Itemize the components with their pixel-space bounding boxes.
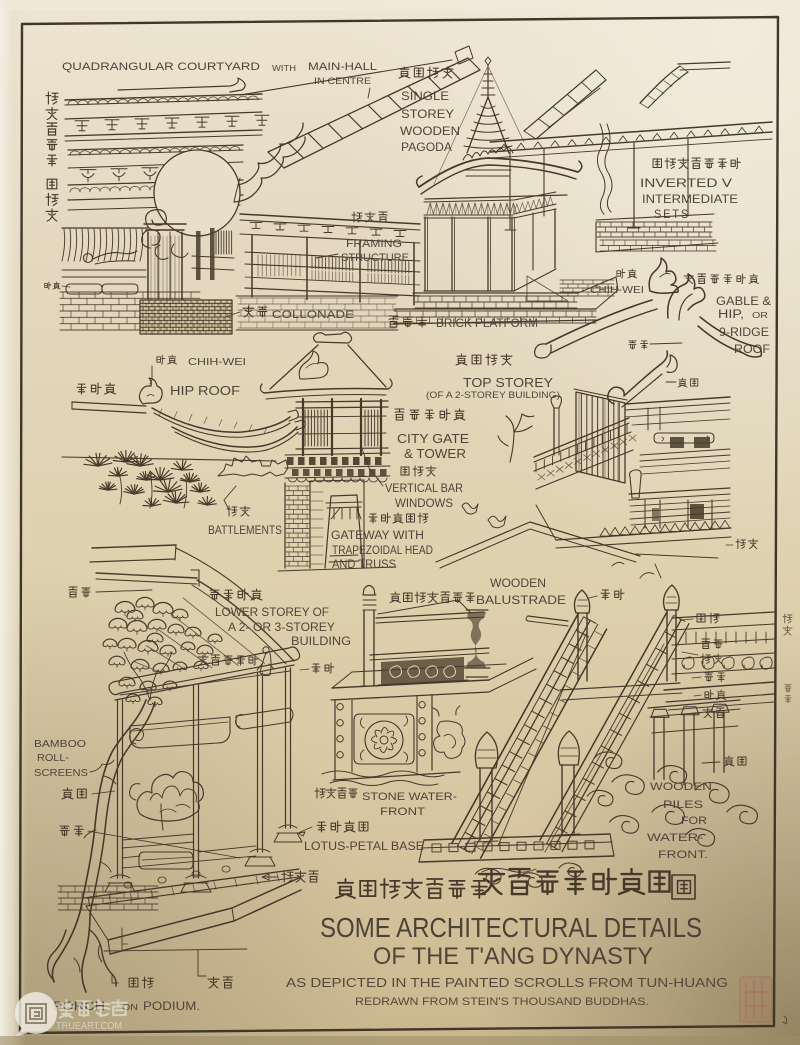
svg-text:CHIH-WEI: CHIH-WEI (188, 356, 246, 368)
svg-text:COLLONADE: COLLONADE (272, 309, 354, 321)
svg-text:HIP,: HIP, (718, 309, 744, 321)
svg-text:BALUSTRADE: BALUSTRADE (476, 595, 566, 607)
svg-text:AND TRUSS: AND TRUSS (332, 559, 396, 571)
svg-text:QUADRANGULAR COURTYARD: QUADRANGULAR COURTYARD (62, 61, 260, 73)
svg-text:FRONT.: FRONT. (658, 849, 708, 861)
svg-text:LOWER STOREY OF: LOWER STOREY OF (215, 607, 329, 619)
svg-text:VERTICAL BAR: VERTICAL BAR (385, 483, 463, 495)
svg-text:MAIN-HALL: MAIN-HALL (308, 61, 377, 73)
svg-text:PILES: PILES (663, 799, 703, 811)
svg-text:& TOWER: & TOWER (404, 446, 466, 461)
svg-text:HIP ROOF: HIP ROOF (170, 383, 240, 398)
svg-text:SCREENS: SCREENS (34, 767, 88, 779)
svg-text:INTERMEDIATE: INTERMEDIATE (642, 192, 738, 206)
svg-text:GATEWAY WITH: GATEWAY WITH (331, 530, 424, 542)
svg-text:SOME ARCHITECTURAL DETAILS: SOME ARCHITECTURAL DETAILS (320, 912, 702, 943)
svg-text:REDRAWN FROM STEIN'S THOUSA: REDRAWN FROM STEIN'S THOUSAND BUDDHAS. (355, 996, 649, 1008)
svg-text:INVERTED V: INVERTED V (640, 176, 732, 190)
svg-text:ROLL-: ROLL- (37, 752, 70, 764)
svg-text:A 2- OR 3-STOREY: A 2- OR 3-STOREY (228, 622, 335, 634)
svg-text:OR: OR (752, 310, 768, 320)
svg-text:BAMBOO: BAMBOO (34, 738, 86, 750)
svg-text:CHIH-WEI: CHIH-WEI (590, 284, 644, 296)
svg-text:STONE WATER-: STONE WATER- (362, 791, 457, 803)
svg-text:(OF A 2-STOREY BUILDING): (OF A 2-STOREY BUILDING) (426, 390, 560, 400)
svg-text:LOTUS-PETAL BASE: LOTUS-PETAL BASE (304, 841, 424, 853)
svg-text:SINGLE: SINGLE (401, 91, 449, 103)
svg-text:WOODEN: WOODEN (650, 781, 712, 793)
svg-text:WINDOWS: WINDOWS (395, 498, 453, 510)
svg-text:PODIUM.: PODIUM. (143, 1001, 200, 1013)
svg-text:WOODEN: WOODEN (400, 126, 460, 138)
svg-text:WOODEN: WOODEN (490, 578, 546, 590)
svg-text:BRICK PLATFORM: BRICK PLATFORM (436, 316, 538, 330)
svg-text:TRUEART.COM: TRUEART.COM (56, 1021, 122, 1032)
svg-text:PAGODA: PAGODA (401, 142, 452, 154)
svg-text:9-RIDGE: 9-RIDGE (719, 327, 769, 339)
svg-text:GABLE &: GABLE & (716, 296, 771, 308)
svg-text:FRONT: FRONT (380, 806, 425, 818)
svg-text:STRUCTURE: STRUCTURE (341, 252, 409, 264)
svg-text:FRAMING: FRAMING (346, 238, 402, 250)
svg-text:SETS: SETS (654, 207, 690, 221)
svg-text:BATTLEMENTS: BATTLEMENTS (208, 525, 282, 537)
svg-text:WATER-: WATER- (647, 832, 703, 844)
svg-text:TRAPEZOIDAL HEAD: TRAPEZOIDAL HEAD (332, 545, 433, 557)
svg-text:AS DEPICTED IN THE PAINTED SCR: AS DEPICTED IN THE PAINTED SCROLLS FROM … (286, 976, 728, 990)
svg-text:CITY GATE: CITY GATE (397, 431, 469, 446)
svg-text:OF THE T'ANG DYNASTY: OF THE T'ANG DYNASTY (373, 943, 653, 970)
svg-text:STOREY: STOREY (401, 109, 454, 121)
svg-text:FOR: FOR (681, 815, 707, 827)
svg-text:TOP STOREY: TOP STOREY (463, 375, 553, 390)
svg-text:BUILDING: BUILDING (291, 636, 351, 648)
svg-text:WITH: WITH (272, 63, 296, 73)
